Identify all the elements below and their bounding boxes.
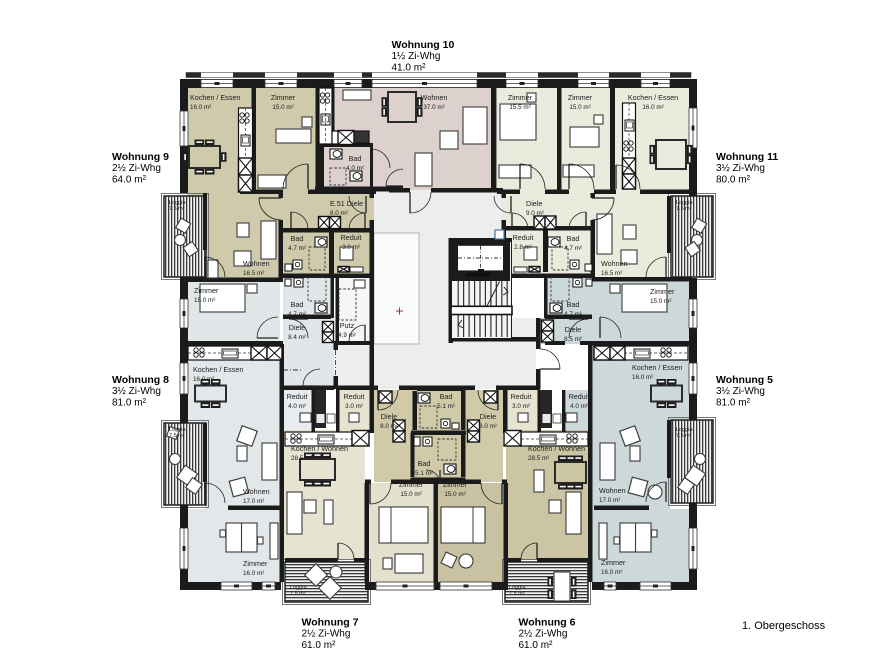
svg-text:7.5 m²: 7.5 m² — [676, 433, 692, 439]
svg-text:Wohnen: Wohnen — [243, 487, 270, 496]
svg-text:15.0 m²: 15.0 m² — [650, 298, 671, 305]
svg-text:61.0 m²: 61.0 m² — [519, 640, 554, 651]
svg-text:8.0 m²: 8.0 m² — [330, 210, 348, 217]
svg-text:Zimmer: Zimmer — [243, 559, 268, 568]
svg-text:64.0 m²: 64.0 m² — [112, 175, 147, 186]
svg-text:Wohnung 5: Wohnung 5 — [716, 374, 773, 386]
svg-text:15.0 m²: 15.0 m² — [569, 104, 590, 111]
svg-text:Reduit: Reduit — [569, 392, 590, 401]
svg-text:Wohnung 7: Wohnung 7 — [302, 617, 359, 629]
svg-text:3½ Zi-Whg: 3½ Zi-Whg — [716, 386, 765, 397]
svg-text:Wohnung 11: Wohnung 11 — [716, 151, 778, 163]
svg-text:Reduit: Reduit — [513, 233, 534, 242]
svg-text:2½ Zi-Whg: 2½ Zi-Whg — [519, 629, 568, 640]
svg-text:Zimmer: Zimmer — [194, 286, 219, 295]
svg-text:Reduit: Reduit — [511, 392, 532, 401]
svg-text:61.0 m²: 61.0 m² — [302, 640, 337, 651]
svg-text:Reduit: Reduit — [341, 233, 362, 242]
svg-text:2½ Zi-Whg: 2½ Zi-Whg — [112, 163, 161, 174]
svg-text:Diele: Diele — [289, 323, 305, 332]
svg-text:Wohnen: Wohnen — [601, 259, 628, 268]
svg-text:Kochen / Wohnen: Kochen / Wohnen — [528, 444, 585, 453]
svg-text:3.0 m²: 3.0 m² — [345, 403, 363, 410]
svg-text:Zimmer: Zimmer — [271, 93, 296, 102]
svg-text:Bad: Bad — [418, 459, 431, 468]
svg-text:4.7 m²: 4.7 m² — [288, 311, 306, 318]
svg-text:Kochen / Wohnen: Kochen / Wohnen — [291, 444, 348, 453]
svg-text:Zimmer: Zimmer — [443, 480, 468, 489]
svg-text:81.0 m²: 81.0 m² — [112, 398, 147, 409]
svg-text:7.5 m²: 7.5 m² — [169, 206, 185, 212]
svg-text:28.5 m²: 28.5 m² — [291, 455, 312, 462]
svg-text:Kochen / Essen: Kochen / Essen — [628, 93, 678, 102]
svg-text:81.0 m²: 81.0 m² — [716, 398, 751, 409]
svg-text:Kochen / Essen: Kochen / Essen — [193, 365, 243, 374]
svg-text:3.0 m²: 3.0 m² — [512, 403, 530, 410]
svg-text:7.5 m²: 7.5 m² — [509, 591, 525, 597]
svg-text:Bad: Bad — [567, 300, 580, 309]
svg-text:8.0 m²: 8.0 m² — [479, 423, 497, 430]
svg-text:4.7 m²: 4.7 m² — [564, 245, 582, 252]
svg-text:4.7 m²: 4.7 m² — [288, 245, 306, 252]
svg-text:17.0 m²: 17.0 m² — [243, 498, 264, 505]
svg-text:16.5 m²: 16.5 m² — [243, 270, 264, 277]
svg-text:Diele: Diele — [480, 412, 496, 421]
svg-text:Zimmer: Zimmer — [399, 480, 424, 489]
svg-text:4.0 m²: 4.0 m² — [346, 165, 364, 172]
svg-text:4.7 m²: 4.7 m² — [564, 311, 582, 318]
svg-text:Kochen / Essen: Kochen / Essen — [632, 363, 682, 372]
svg-text:15.5 m²: 15.5 m² — [509, 104, 530, 111]
svg-text:8.5 m²: 8.5 m² — [564, 336, 582, 343]
svg-text:Zimmer: Zimmer — [568, 93, 593, 102]
svg-text:15.0 m²: 15.0 m² — [272, 104, 293, 111]
svg-text:3.0 m²: 3.0 m² — [342, 244, 360, 251]
svg-text:Bad: Bad — [440, 392, 453, 401]
svg-text:37.0 m²: 37.0 m² — [423, 104, 444, 111]
svg-text:80.0 m²: 80.0 m² — [716, 175, 751, 186]
svg-text:41.0 m²: 41.0 m² — [392, 63, 427, 74]
svg-text:28.5 m²: 28.5 m² — [528, 455, 549, 462]
svg-text:Bad: Bad — [291, 234, 304, 243]
svg-text:3½ Zi-Whg: 3½ Zi-Whg — [716, 163, 765, 174]
svg-text:Bad: Bad — [291, 300, 304, 309]
svg-text:Kochen / Essen: Kochen / Essen — [190, 93, 240, 102]
svg-text:Zimmer: Zimmer — [601, 558, 626, 567]
svg-text:Putz: Putz — [340, 321, 355, 330]
svg-text:E.51 Diele: E.51 Diele — [330, 199, 363, 208]
svg-text:7.5 m²: 7.5 m² — [290, 591, 306, 597]
svg-text:8.0 m²: 8.0 m² — [380, 423, 398, 430]
svg-text:16.0 m²: 16.0 m² — [243, 570, 264, 577]
svg-text:3½ Zi-Whg: 3½ Zi-Whg — [112, 386, 161, 397]
svg-text:Zimmer: Zimmer — [650, 287, 675, 296]
svg-text:4.9 m²: 4.9 m² — [338, 332, 356, 339]
svg-text:16.0 m²: 16.0 m² — [601, 569, 622, 576]
svg-text:5.1 m²: 5.1 m² — [415, 470, 433, 477]
svg-text:Wohnung 6: Wohnung 6 — [519, 617, 576, 629]
svg-text:Diele: Diele — [565, 325, 581, 334]
svg-text:15.0 m²: 15.0 m² — [400, 491, 421, 498]
svg-text:7.5 m²: 7.5 m² — [169, 433, 185, 439]
svg-text:15.0 m²: 15.0 m² — [444, 491, 465, 498]
svg-text:9.0 m²: 9.0 m² — [526, 210, 544, 217]
svg-text:16.0 m²: 16.0 m² — [193, 376, 214, 383]
svg-text:2.8 m²: 2.8 m² — [514, 244, 532, 251]
svg-text:17.0 m²: 17.0 m² — [599, 497, 620, 504]
svg-text:4.0 m²: 4.0 m² — [288, 403, 306, 410]
svg-text:Wohnen: Wohnen — [599, 486, 626, 495]
svg-text:16.5 m²: 16.5 m² — [601, 270, 622, 277]
svg-text:Wohnung 10: Wohnung 10 — [392, 39, 455, 51]
svg-text:Reduit: Reduit — [344, 392, 365, 401]
svg-text:Bad: Bad — [567, 234, 580, 243]
svg-text:7.5 m²: 7.5 m² — [676, 206, 692, 212]
svg-text:Wohnung 9: Wohnung 9 — [112, 151, 169, 163]
svg-text:1½ Zi-Whg: 1½ Zi-Whg — [392, 51, 441, 62]
svg-text:Reduit: Reduit — [287, 392, 308, 401]
svg-text:16.0 m²: 16.0 m² — [632, 374, 653, 381]
svg-text:Diele: Diele — [526, 199, 542, 208]
svg-text:15.0 m²: 15.0 m² — [194, 297, 215, 304]
svg-text:4.0 m²: 4.0 m² — [570, 403, 588, 410]
svg-text:Wohnen: Wohnen — [421, 93, 448, 102]
svg-text:8.4 m²: 8.4 m² — [288, 334, 306, 341]
svg-text:5.1 m²: 5.1 m² — [437, 403, 455, 410]
svg-text:Wohnung 8: Wohnung 8 — [112, 374, 169, 386]
svg-text:Diele: Diele — [381, 412, 397, 421]
svg-text:1. Obergeschoss: 1. Obergeschoss — [742, 620, 826, 632]
svg-text:Bad: Bad — [349, 154, 362, 163]
svg-text:Wohnen: Wohnen — [243, 259, 270, 268]
svg-text:2½ Zi-Whg: 2½ Zi-Whg — [302, 629, 351, 640]
svg-text:16.0 m²: 16.0 m² — [190, 104, 211, 111]
svg-text:Zimmer: Zimmer — [508, 93, 533, 102]
svg-text:16.0 m²: 16.0 m² — [642, 104, 663, 111]
